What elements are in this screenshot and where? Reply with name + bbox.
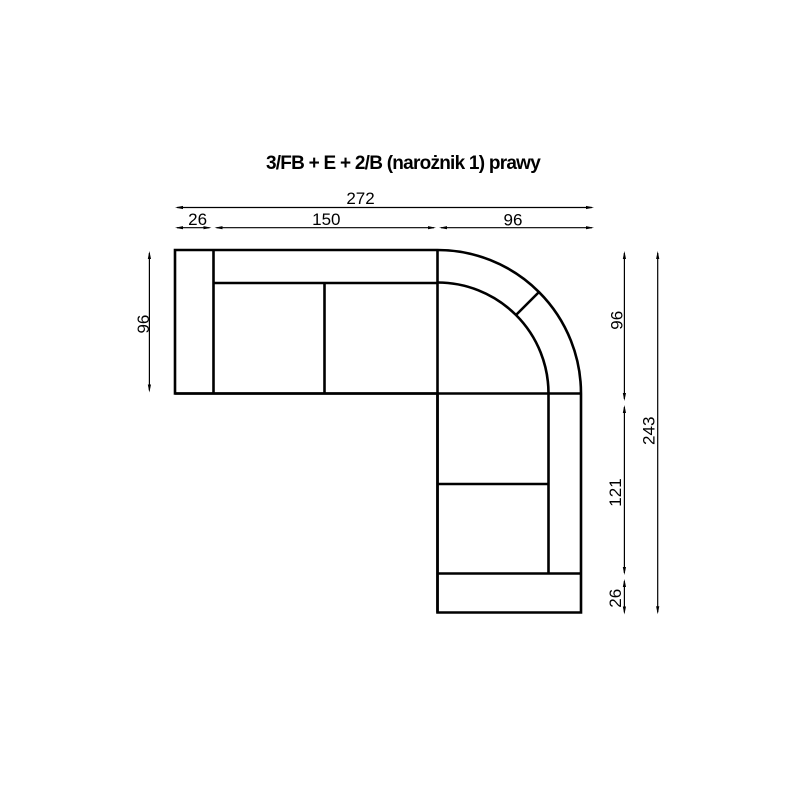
svg-text:26: 26 bbox=[606, 589, 625, 608]
svg-text:121: 121 bbox=[606, 478, 625, 506]
svg-text:3/FB + E + 2/B (narożnik 1) pr: 3/FB + E + 2/B (narożnik 1) prawy bbox=[266, 153, 541, 174]
svg-text:26: 26 bbox=[188, 210, 207, 229]
svg-text:243: 243 bbox=[640, 417, 659, 445]
svg-text:96: 96 bbox=[134, 315, 153, 334]
svg-text:272: 272 bbox=[346, 189, 374, 208]
svg-text:96: 96 bbox=[608, 311, 627, 330]
svg-text:150: 150 bbox=[312, 210, 340, 229]
svg-text:96: 96 bbox=[504, 211, 523, 230]
